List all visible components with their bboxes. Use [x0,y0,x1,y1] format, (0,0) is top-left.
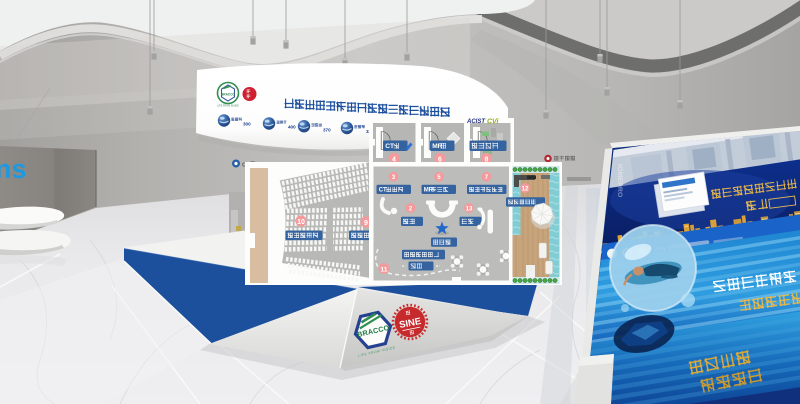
svg-text:9: 9 [364,220,368,227]
svg-text:11: 11 [380,266,387,273]
svg-text:370: 370 [323,127,331,132]
svg-text:400: 400 [288,125,296,130]
svg-text:ACIST: ACIST [466,119,486,125]
svg-text:13: 13 [466,206,473,213]
svg-text:10: 10 [297,219,305,226]
svg-text:300: 300 [243,122,251,127]
svg-text:12: 12 [522,186,529,193]
svg-text:CT: CT [379,188,387,194]
svg-text:LIFE FROM INSIDE: LIFE FROM INSIDE [217,105,239,108]
svg-text:BRACCO: BRACCO [221,92,236,96]
svg-text:ns: ns [0,154,27,184]
svg-text:CT: CT [385,143,394,150]
svg-text:IOMEPRO: IOMEPRO [616,164,623,198]
svg-text:CVi: CVi [487,119,499,126]
